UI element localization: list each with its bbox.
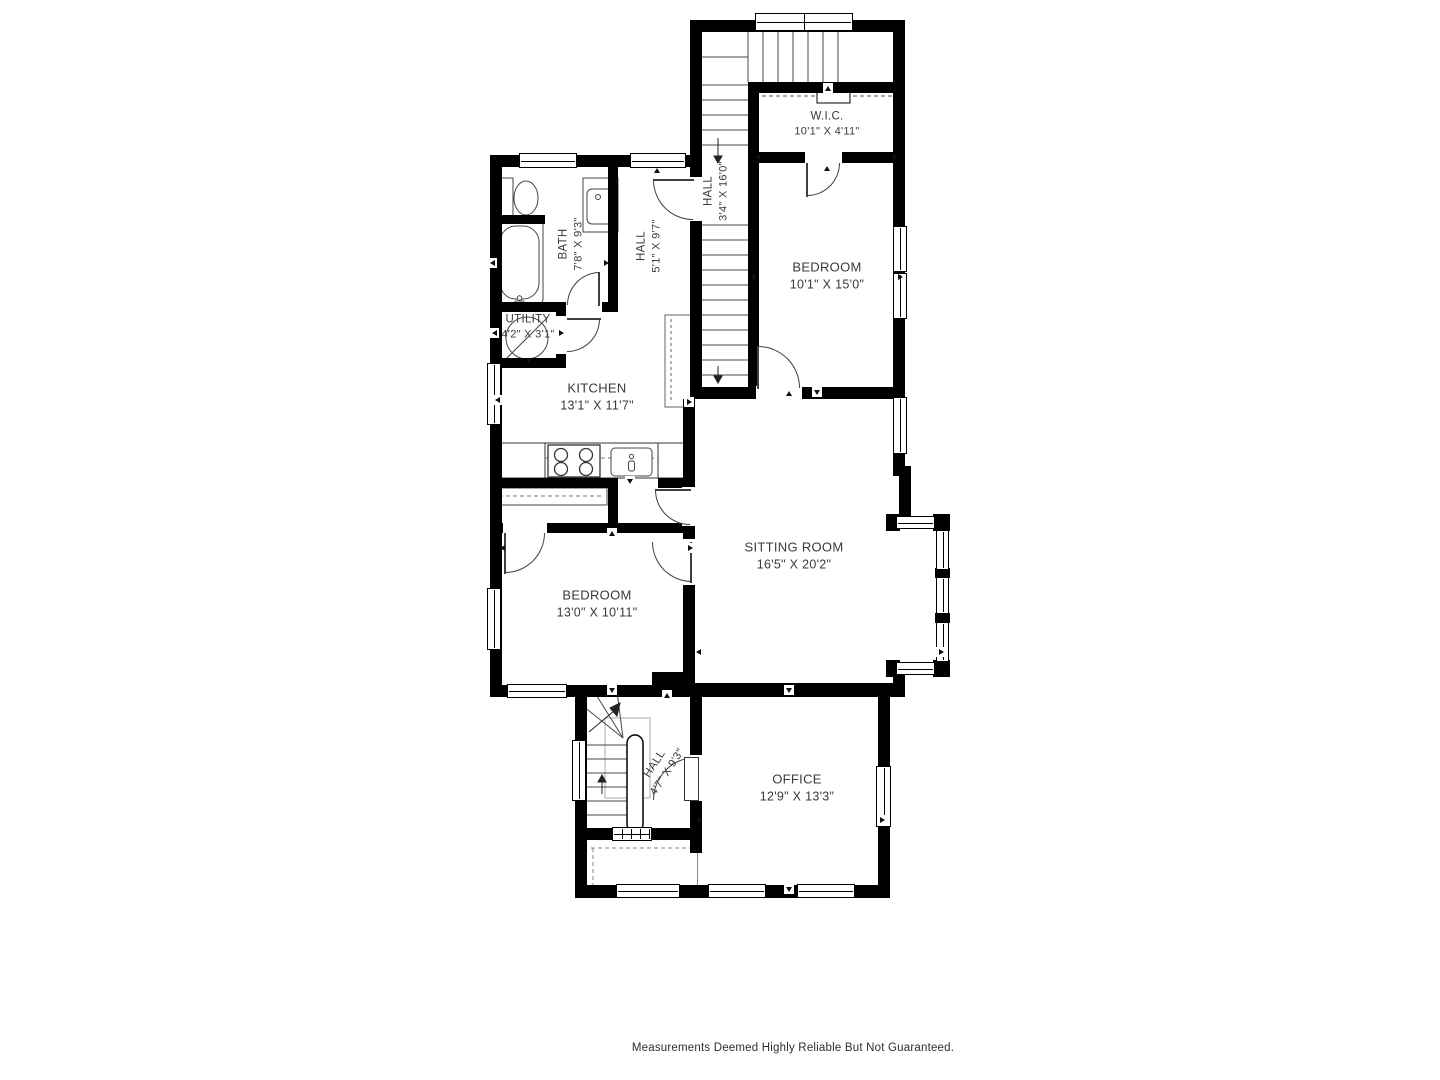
dimension-arrow [497, 543, 507, 553]
door-swing [653, 180, 693, 220]
room-dims: 10'1" X 4'11" [794, 124, 859, 139]
pantry-cabinet-icon [665, 315, 692, 407]
room-dims: 7'8" X 9'3" [571, 217, 586, 270]
room-label-hall-upper: HALL 3'4" X 16'0" [702, 161, 731, 221]
room-dims: 3'4" X 16'0" [716, 161, 731, 221]
cased-opening [697, 853, 698, 885]
window [936, 530, 949, 570]
window [708, 884, 766, 898]
room-name: W.I.C. [794, 110, 859, 125]
dimension-arrow [877, 815, 887, 825]
room-name: BATH [557, 217, 572, 270]
room-label-utility: UTILITY 4'2" X 3'1" [501, 313, 554, 342]
arrow-down-icon [786, 688, 792, 693]
window [616, 884, 680, 898]
dimension-arrow [693, 647, 703, 657]
room-dims: 13'0" X 10'11" [557, 604, 638, 621]
stove-icon [548, 445, 600, 477]
door-leaf [567, 318, 601, 320]
arrow-left-icon [696, 817, 701, 823]
window [755, 13, 853, 31]
room-dims: 16'5" X 20'2" [745, 556, 844, 573]
arrow-up-icon [825, 86, 831, 91]
window [896, 516, 935, 529]
door-leaf [598, 272, 600, 306]
dimension-arrow [784, 388, 794, 398]
room-dims: 4'2" X 3'1" [501, 327, 554, 342]
room-label-wic: W.I.C. 10'1" X 4'11" [794, 110, 859, 139]
dimension-arrow [784, 884, 794, 894]
arrow-down-icon [814, 390, 820, 395]
window [487, 363, 501, 425]
window [893, 226, 907, 272]
dimension-arrow [890, 152, 900, 162]
wall-segment [490, 215, 545, 224]
arrow-down-icon [627, 479, 633, 484]
dimension-arrow [936, 647, 946, 657]
arrow-down-icon [526, 359, 532, 364]
dimension-arrow [524, 356, 534, 366]
wall-segment [608, 160, 618, 312]
arrow-up-icon [664, 693, 670, 698]
bathtub-icon [496, 220, 543, 305]
dimension-arrow [784, 685, 794, 695]
room-label-kitchen: KITCHEN 13'1" X 11'7" [560, 381, 634, 414]
arrow-down-icon [609, 688, 615, 693]
wall-segment [893, 20, 905, 397]
arrow-down-icon [786, 887, 792, 892]
arrow-right-icon [893, 154, 898, 160]
dimension-arrow [652, 165, 662, 175]
room-name: HALL [635, 219, 650, 272]
wall-segment [608, 478, 618, 528]
room-label-bedroom-upper: BEDROOM 10'1" X 15'0" [790, 260, 865, 293]
room-name: OFFICE [760, 772, 835, 789]
arrow-up-icon [609, 531, 615, 536]
dimension-arrow [607, 528, 617, 538]
dimension-arrow [685, 543, 695, 553]
arrow-right-icon [687, 399, 692, 405]
window [797, 884, 855, 898]
arrow-up-icon [824, 166, 830, 171]
dimension-arrow [812, 387, 822, 397]
room-label-bath: BATH 7'8" X 9'3" [557, 217, 586, 270]
floor-plan: W.I.C. 10'1" X 4'11" HALL 3'4" X 16'0" B… [0, 0, 1440, 1080]
dimension-arrow [492, 395, 502, 405]
room-label-office: OFFICE 12'9" X 13'3" [760, 772, 835, 805]
dimension-arrow [601, 258, 611, 268]
room-dims: 12'9" X 13'3" [760, 788, 835, 805]
room-label-bedroom-lower: BEDROOM 13'0" X 10'11" [557, 588, 638, 621]
arrow-right-icon [939, 649, 944, 655]
porch-outline [591, 848, 693, 886]
window [572, 740, 586, 801]
room-name: UTILITY [501, 313, 554, 328]
toilet-icon [497, 178, 538, 217]
dimension-arrow [625, 476, 635, 486]
dimension-arrow [752, 152, 762, 162]
door-swing [505, 533, 545, 573]
window [487, 588, 501, 650]
arrow-right-icon [604, 260, 609, 266]
room-dims: 13'1" X 11'7" [560, 397, 634, 414]
room-name: BEDROOM [557, 588, 638, 605]
laundry-counter [496, 488, 607, 505]
dimension-arrow [693, 815, 703, 825]
dimension-arrow [487, 258, 497, 268]
dimension-arrow [895, 272, 905, 282]
dimension-arrow [607, 685, 617, 695]
door-leaf [655, 489, 691, 491]
arrow-left-icon [696, 649, 701, 655]
window [507, 684, 567, 698]
dimension-arrow [823, 83, 833, 93]
door-leaf [684, 757, 699, 801]
room-name: SITTING ROOM [745, 540, 844, 557]
wall-segment [652, 672, 695, 697]
wall-segment [690, 683, 905, 697]
wall-segment [933, 660, 950, 677]
wall-segment [490, 478, 608, 488]
kitchen-sink-icon [611, 448, 652, 476]
window [893, 397, 907, 454]
arrow-left-icon [492, 330, 497, 336]
room-name: HALL [702, 161, 717, 221]
dimension-arrow [822, 163, 832, 173]
door-leaf [653, 179, 694, 181]
dimension-arrow [747, 272, 757, 282]
arrow-left-icon [490, 260, 495, 266]
window [612, 827, 652, 841]
door-opening [756, 386, 802, 400]
window [936, 577, 949, 614]
door-leaf [806, 163, 808, 197]
dimension-arrow [662, 690, 672, 700]
door-swing [655, 490, 690, 525]
arrow-right-icon [898, 274, 903, 280]
room-label-hall-mid: HALL 5'1" X 9'7" [635, 219, 664, 272]
room-name: BEDROOM [790, 260, 865, 277]
arrow-left-icon [500, 545, 505, 551]
room-label-sitting-room: SITTING ROOM 16'5" X 20'2" [745, 540, 844, 573]
arrow-up-icon [786, 391, 792, 396]
room-dims: 10'1" X 15'0" [790, 276, 865, 293]
arrow-left-icon [750, 274, 755, 280]
wall-segment [933, 514, 950, 531]
window [519, 153, 577, 168]
arrow-right-icon [880, 817, 885, 823]
wall-segment [893, 466, 911, 476]
arrow-right-icon [559, 330, 564, 336]
window [896, 662, 935, 675]
door-leaf [757, 346, 759, 389]
arrow-right-icon [688, 545, 693, 551]
arrow-left-icon [495, 397, 500, 403]
disclaimer-text: Measurements Deemed Highly Reliable But … [632, 1042, 954, 1054]
room-name: KITCHEN [560, 381, 634, 398]
dimension-arrow [684, 397, 694, 407]
arrow-up-icon [654, 168, 660, 173]
arrow-left-icon [755, 154, 760, 160]
dimension-arrow [556, 328, 566, 338]
door-leaf [504, 533, 506, 574]
room-dims: 5'1" X 9'7" [649, 219, 664, 272]
dimension-arrow [489, 328, 499, 338]
